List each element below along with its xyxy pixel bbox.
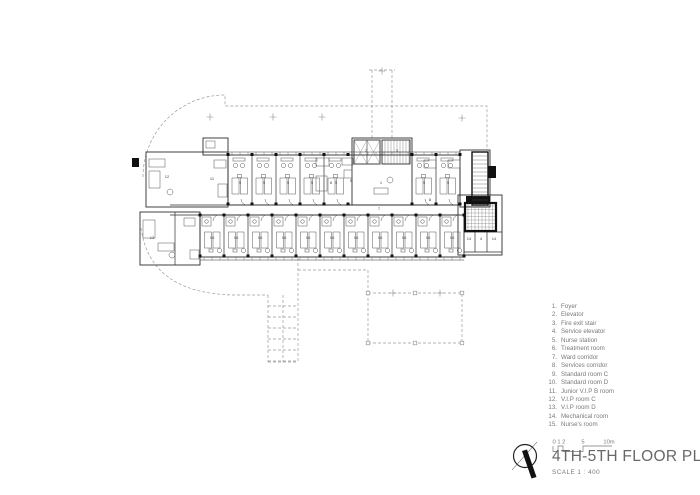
- legend-item: 15.Nurse's room: [544, 421, 614, 429]
- legend-item: 7.Ward corridor: [544, 354, 614, 362]
- room-number: 9: [239, 180, 242, 185]
- room-number: 10: [234, 235, 239, 240]
- scale-bar-label-right: 10m: [603, 440, 614, 446]
- legend-item-label: Standard room C: [561, 371, 608, 379]
- legend-item-number: 15.: [544, 421, 557, 429]
- scale-bar-label-mid: 5: [581, 440, 584, 446]
- room-number: 9: [335, 180, 338, 185]
- legend-item-label: Elevator: [561, 311, 584, 319]
- core-hatching: [354, 140, 496, 231]
- legend-item-number: 11.: [544, 388, 557, 396]
- legend-item-number: 10.: [544, 379, 557, 387]
- room-furniture: [143, 141, 462, 259]
- room-number: 9: [263, 180, 266, 185]
- room-number: 6: [330, 180, 333, 185]
- legend-item-label: Services corridor: [561, 362, 607, 370]
- legend-item: 2.Elevator: [544, 311, 614, 319]
- legend-item: 4.Service elevator: [544, 328, 614, 336]
- legend-item: 11.Junior V.I.P B room: [544, 388, 614, 396]
- legend-item: 8.Services corridor: [544, 362, 614, 370]
- room-number: 14: [467, 236, 472, 241]
- legend-item-label: V.I.P room C: [561, 396, 596, 404]
- legend-item-label: Ward corridor: [561, 354, 598, 362]
- room-number: 10: [450, 235, 455, 240]
- room-number: 1: [380, 180, 383, 185]
- sheet-title: 4TH-5TH FLOOR PLAN: [552, 448, 700, 466]
- legend-item-number: 14.: [544, 413, 557, 421]
- legend-item-label: Nurse's room: [561, 421, 598, 429]
- legend-item-number: 7.: [544, 354, 557, 362]
- legend-item-label: Treatment room: [561, 345, 605, 353]
- legend-item-label: Standard room D: [561, 379, 608, 387]
- room-number: 9: [311, 180, 314, 185]
- legend-item: 5.Nurse station: [544, 337, 614, 345]
- legend-item-number: 2.: [544, 311, 557, 319]
- room-number: 10: [330, 235, 335, 240]
- legend-item: 12.V.I.P room C: [544, 396, 614, 404]
- legend-item-label: Junior V.I.P B room: [561, 388, 614, 396]
- legend-item-number: 13.: [544, 404, 557, 412]
- legend-item-number: 8.: [544, 362, 557, 370]
- scale-bar-label-left: 0 1 2: [553, 440, 566, 446]
- room-number: 10: [354, 235, 359, 240]
- room-number: 13: [150, 235, 155, 240]
- room-number: 9: [423, 180, 426, 185]
- legend-item-label: Service elevator: [561, 328, 605, 336]
- legend-item-label: Nurse station: [561, 337, 597, 345]
- legend-item-number: 12.: [544, 396, 557, 404]
- legend-item: 9.Standard room C: [544, 371, 614, 379]
- floor-plan-sheet: 1211139999999101010101010101010101078561…: [0, 0, 700, 495]
- title-block: 4TH-5TH FLOOR PLAN SCALE 1 : 400: [552, 448, 700, 476]
- room-number: 10: [210, 235, 215, 240]
- room-number: 10: [306, 235, 311, 240]
- room-number-labels: 1211139999999101010101010101010101078561…: [150, 148, 497, 241]
- legend-item-number: 6.: [544, 345, 557, 353]
- room-number: 12: [165, 174, 170, 179]
- room-number: 10: [402, 235, 407, 240]
- legend-item: 10.Standard room D: [544, 379, 614, 387]
- room-number: 10: [378, 235, 383, 240]
- legend-item-number: 5.: [544, 337, 557, 345]
- room-number: 4: [480, 236, 483, 241]
- legend-item: 6.Treatment room: [544, 345, 614, 353]
- room-number: 10: [426, 235, 431, 240]
- legend-item-label: Mechanical room: [561, 413, 608, 421]
- room-number: 11: [210, 176, 215, 181]
- legend-item-label: V.I.P room D: [561, 404, 596, 412]
- legend-item: 13.V.I.P room D: [544, 404, 614, 412]
- legend-item-label: Foyer: [561, 303, 577, 311]
- legend-item-number: 1.: [544, 303, 557, 311]
- north-arrow-icon: [512, 442, 537, 479]
- room-number: 8: [429, 197, 432, 202]
- legend-item-label: Fire exit stair: [561, 320, 596, 328]
- legend-item-number: 3.: [544, 320, 557, 328]
- room-number: 7: [378, 206, 381, 211]
- sheet-scale: SCALE 1 : 400: [552, 469, 700, 476]
- legend-item: 14.Mechanical room: [544, 413, 614, 421]
- room-number: 14: [492, 236, 497, 241]
- room-number: 9: [287, 180, 290, 185]
- legend-list: 1.Foyer2.Elevator3.Fire exit stair4.Serv…: [544, 303, 614, 430]
- room-number: 9: [447, 180, 450, 185]
- legend-item-number: 4.: [544, 328, 557, 336]
- legend-item: 3.Fire exit stair: [544, 320, 614, 328]
- legend-item-number: 9.: [544, 371, 557, 379]
- legend-item: 1.Foyer: [544, 303, 614, 311]
- room-number: 10: [282, 235, 287, 240]
- room-number: 10: [258, 235, 263, 240]
- building-walls: [132, 138, 502, 265]
